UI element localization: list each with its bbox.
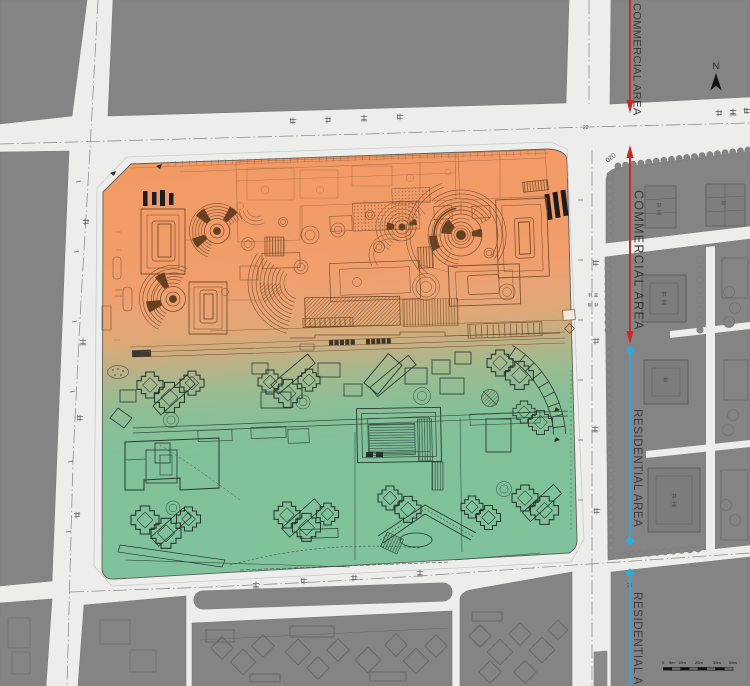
svg-text:20m: 20m — [695, 660, 703, 665]
svg-text:N: N — [713, 61, 720, 72]
svg-text:30m: 30m — [713, 660, 721, 665]
svg-text:5m: 5m — [669, 660, 675, 665]
svg-text:50m: 50m — [729, 660, 737, 665]
svg-text:22: 22 — [583, 125, 589, 131]
svg-text:RESIDENTIAL AREA: RESIDENTIAL AREA — [631, 592, 643, 686]
svg-text:RESIDENTIAL AREA: RESIDENTIAL AREA — [631, 409, 643, 527]
svg-text:COMMERCIAL AREA: COMMERCIAL AREA — [632, 190, 646, 331]
svg-text:10m: 10m — [678, 660, 686, 665]
svg-text:COMMERCIAL AREA: COMMERCIAL AREA — [631, 3, 643, 116]
